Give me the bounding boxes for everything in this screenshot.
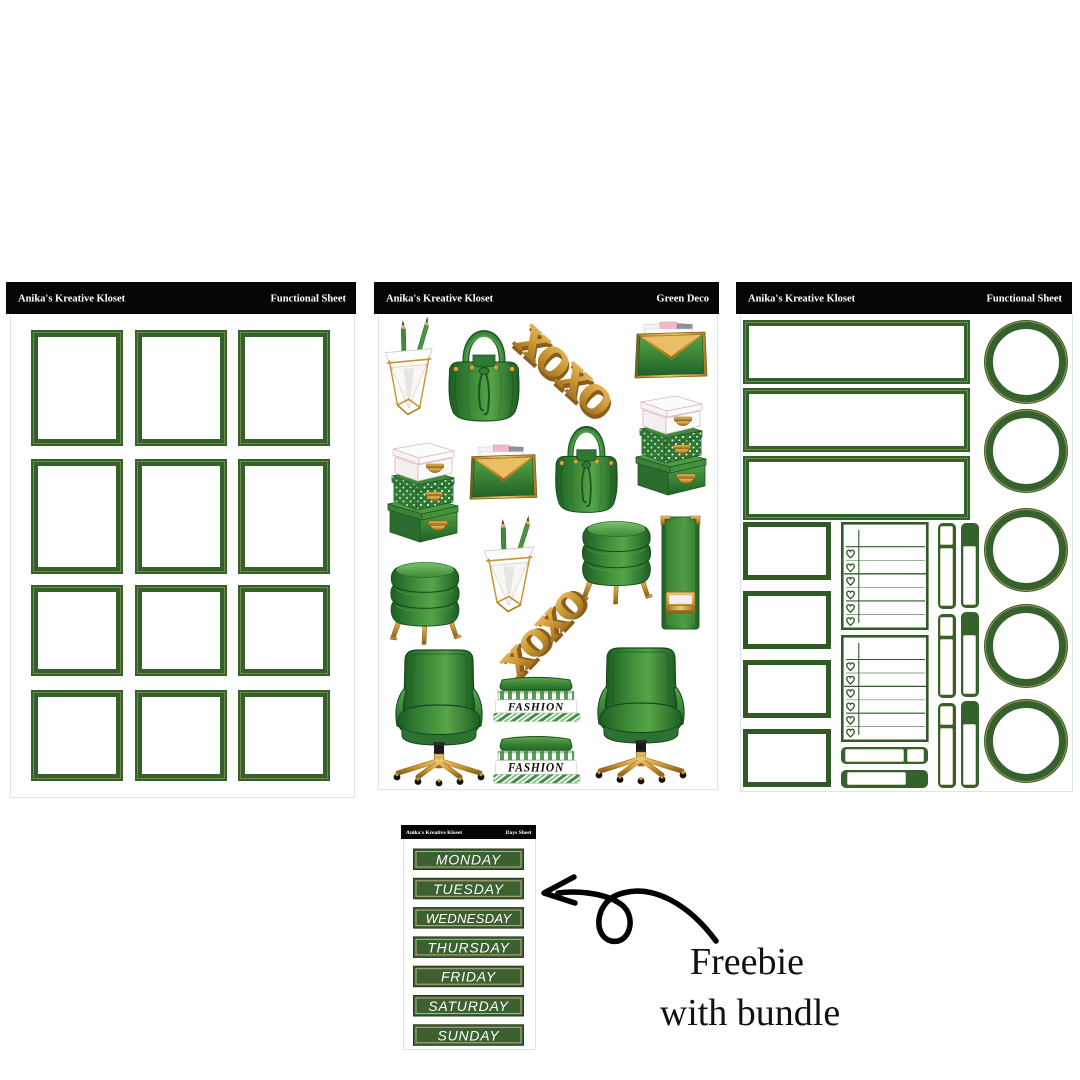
- svg-text:Anika's Kreative Kloset: Anika's Kreative Kloset: [748, 293, 856, 304]
- svg-text:TUESDAY: TUESDAY: [433, 881, 505, 897]
- svg-text:Freebie: Freebie: [690, 941, 804, 983]
- svg-text:Functional Sheet: Functional Sheet: [986, 293, 1062, 304]
- svg-text:Days Sheet: Days Sheet: [506, 830, 532, 836]
- svg-text:with bundle: with bundle: [660, 992, 840, 1034]
- svg-text:SUNDAY: SUNDAY: [437, 1027, 500, 1043]
- svg-text:MONDAY: MONDAY: [436, 852, 502, 868]
- svg-text:Anika's Kreative Kloset: Anika's Kreative Kloset: [406, 830, 462, 836]
- svg-text:FRIDAY: FRIDAY: [441, 969, 497, 985]
- svg-text:WEDNESDAY: WEDNESDAY: [426, 911, 513, 926]
- svg-text:THURSDAY: THURSDAY: [427, 939, 510, 955]
- svg-text:Anika's Kreative Kloset: Anika's Kreative Kloset: [18, 293, 126, 304]
- svg-text:SATURDAY: SATURDAY: [428, 998, 509, 1014]
- svg-text:Functional Sheet: Functional Sheet: [270, 293, 346, 304]
- svg-text:Green Deco: Green Deco: [656, 293, 709, 304]
- svg-text:Anika's Kreative Kloset: Anika's Kreative Kloset: [386, 293, 494, 304]
